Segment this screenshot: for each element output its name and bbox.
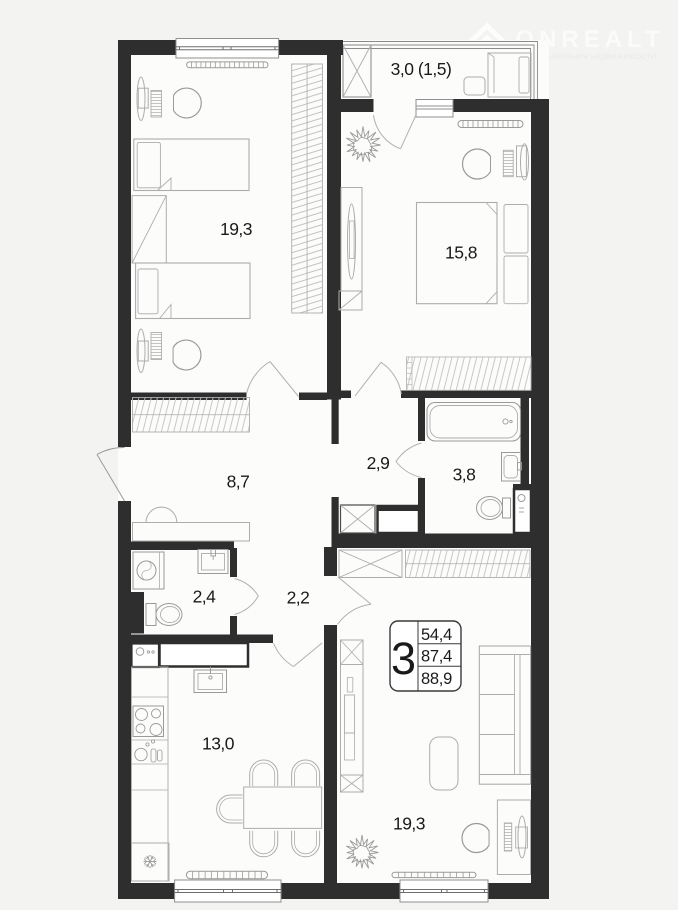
svg-text:87,4: 87,4 bbox=[421, 648, 452, 666]
svg-text:2,2: 2,2 bbox=[287, 588, 310, 608]
svg-text:2,4: 2,4 bbox=[193, 587, 217, 607]
svg-text:19,3: 19,3 bbox=[220, 219, 252, 239]
svg-text:88,9: 88,9 bbox=[421, 670, 452, 688]
svg-text:3,8: 3,8 bbox=[453, 465, 476, 485]
svg-text:3,0 (1,5): 3,0 (1,5) bbox=[391, 59, 452, 79]
svg-text:3: 3 bbox=[391, 633, 416, 684]
svg-text:19,3: 19,3 bbox=[393, 814, 425, 834]
svg-text:8,7: 8,7 bbox=[227, 472, 250, 492]
svg-text:ОБЪЯВЛЕНИЯ НЕДВИЖИМОСТИ: ОБЪЯВЛЕНИЯ НЕДВИЖИМОСТИ bbox=[535, 54, 656, 61]
svg-text:2,9: 2,9 bbox=[367, 453, 390, 473]
svg-text:15,8: 15,8 bbox=[445, 243, 477, 263]
svg-text:13,0: 13,0 bbox=[202, 734, 235, 754]
svg-text:54,4: 54,4 bbox=[421, 626, 452, 644]
